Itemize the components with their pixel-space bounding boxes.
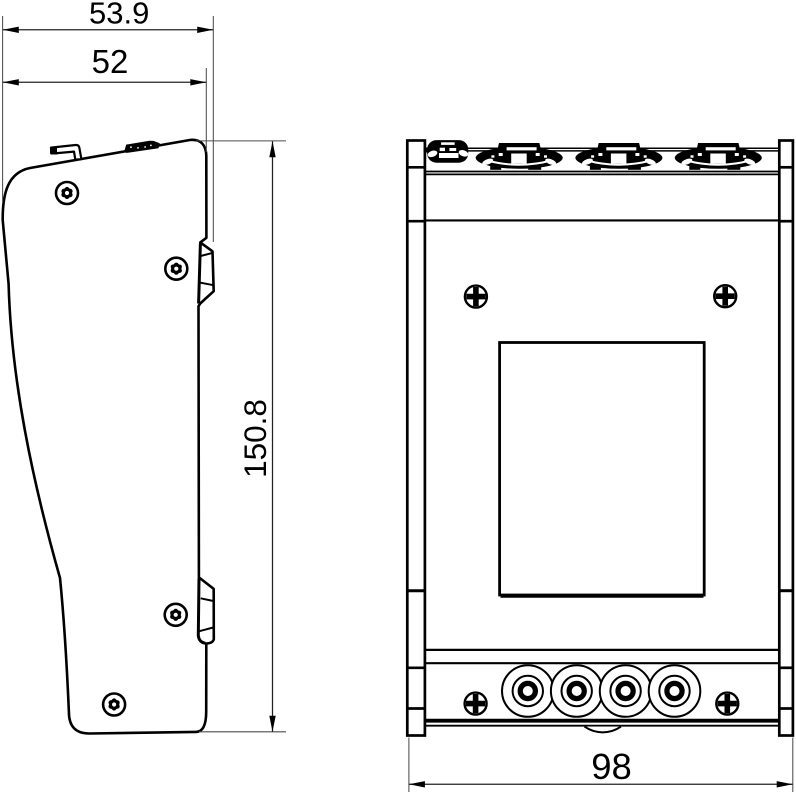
svg-text:53.9: 53.9 <box>89 0 149 31</box>
svg-text:150.8: 150.8 <box>237 399 273 478</box>
svg-text:52: 52 <box>92 43 129 80</box>
svg-text:98: 98 <box>591 746 632 787</box>
